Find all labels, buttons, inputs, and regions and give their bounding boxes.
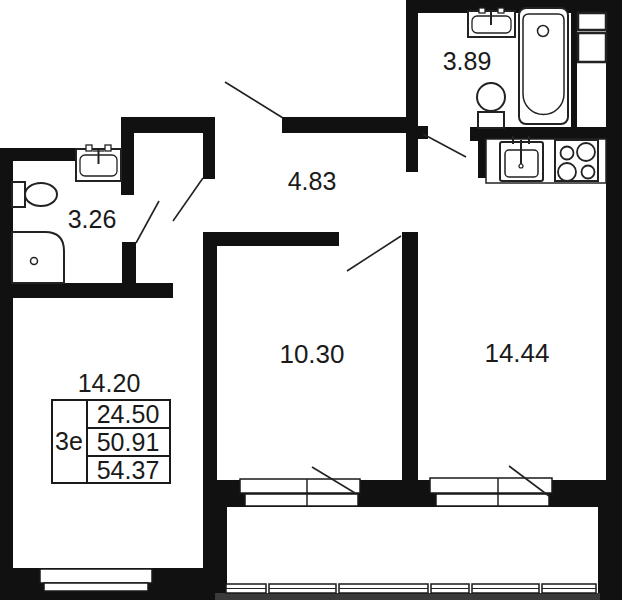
area-label-room-small: 10.30 (279, 339, 344, 369)
wall-segment (122, 242, 136, 290)
wall-segment (0, 283, 173, 298)
unit-stamp: 3е 24.50 50.91 54.37 (52, 400, 170, 484)
kitchen-fixtures (486, 136, 606, 183)
wall-segment (402, 232, 418, 482)
window-living-room (40, 569, 152, 591)
room-small-door-swing (347, 236, 401, 271)
kitchen-sink-icon (500, 136, 543, 181)
floor-plan: 3.89 4.83 3.26 10.30 14.44 14.20 3е 24.5… (0, 0, 622, 600)
shaft-icon (578, 13, 606, 62)
unit-type-label: 3е (55, 427, 83, 455)
windows (40, 478, 596, 593)
sink-icon (468, 8, 515, 37)
corridor-door-swing (173, 178, 203, 221)
toilet-icon (12, 182, 57, 207)
window-room-small (240, 479, 360, 506)
ground-strip (215, 593, 600, 600)
shower-icon (12, 232, 64, 283)
bathroom-top-door-swing (423, 134, 466, 157)
stove-icon (555, 140, 598, 181)
wall-segment (478, 140, 486, 178)
window-kitchen-living (430, 478, 552, 506)
wall-segment (121, 117, 215, 133)
wall-segment (203, 232, 217, 482)
wall-segment (598, 505, 622, 600)
area-label-bathroom-top: 3.89 (443, 47, 492, 75)
wall-segment (406, 0, 418, 172)
wall-segment (0, 148, 13, 600)
area-label-bathroom-left: 3.26 (68, 205, 117, 233)
bathroom-left-door-swing (136, 201, 159, 243)
bathtub-icon (519, 8, 568, 124)
area-label-living-room: 14.20 (78, 369, 141, 397)
wall-segment (418, 126, 428, 139)
balcony-glazing (226, 584, 596, 593)
wall-segment (203, 117, 215, 179)
area-label-hallway: 4.83 (288, 167, 337, 195)
floor-plan-drawing: 3.89 4.83 3.26 10.30 14.44 14.20 3е 24.5… (0, 0, 622, 600)
toilet-icon (477, 83, 505, 128)
unit-area-3: 54.37 (97, 456, 160, 484)
area-label-kitchen-living: 14.44 (484, 338, 549, 368)
wall-segment (571, 5, 577, 130)
wall-segment (282, 117, 418, 133)
unit-area-1: 24.50 (97, 400, 160, 428)
unit-area-2: 50.91 (97, 428, 160, 456)
entry-door-swing (225, 82, 283, 118)
wall-segment (203, 232, 339, 246)
sink-icon (76, 145, 121, 181)
wall-segment (606, 0, 622, 505)
